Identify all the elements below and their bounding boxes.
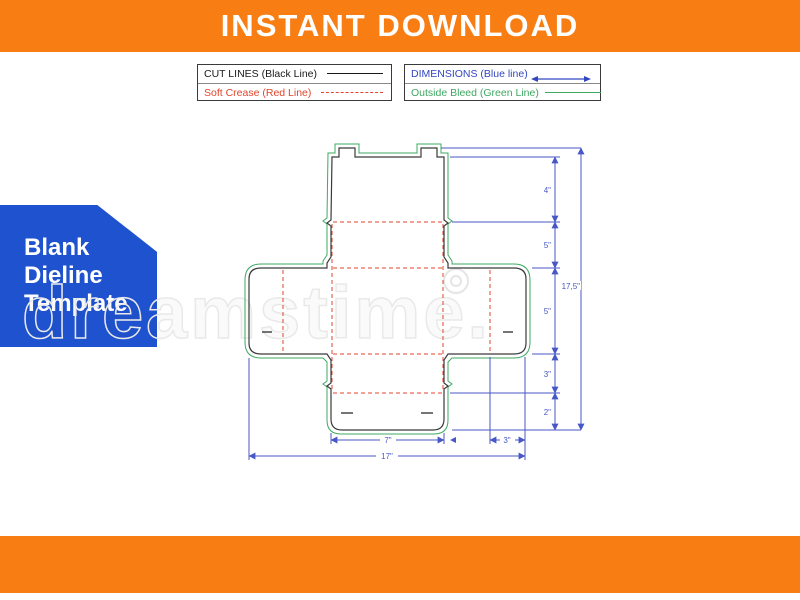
dieline-drawing: 4" 5" 5" 3" 2" 17,5" 7" 3" 17" <box>0 0 800 600</box>
bottom-bar <box>0 536 800 593</box>
dim-label-4in: 4" <box>544 186 551 195</box>
cut-outline <box>249 148 526 430</box>
dim-label-total-width: 17" <box>381 452 393 461</box>
watermark-logo-icon <box>444 269 468 293</box>
bleed-outline <box>245 144 530 434</box>
dim-label-5in-mid: 5" <box>544 307 551 316</box>
dim-label-flap-width: 7" <box>384 436 391 445</box>
dim-label-total-height: 17,5" <box>562 282 581 291</box>
dim-label-3in: 3" <box>544 370 551 379</box>
dim-label-5in-top: 5" <box>544 241 551 250</box>
dimension-lines-bottom: 7" 3" 17" <box>249 357 525 461</box>
dim-label-side-width: 3" <box>503 436 510 445</box>
dim-label-2in: 2" <box>544 408 551 417</box>
crease-lines <box>283 222 490 393</box>
dimension-lines-right: 4" 5" 5" 3" 2" 17,5" <box>441 148 581 430</box>
lock-slits <box>262 332 513 413</box>
